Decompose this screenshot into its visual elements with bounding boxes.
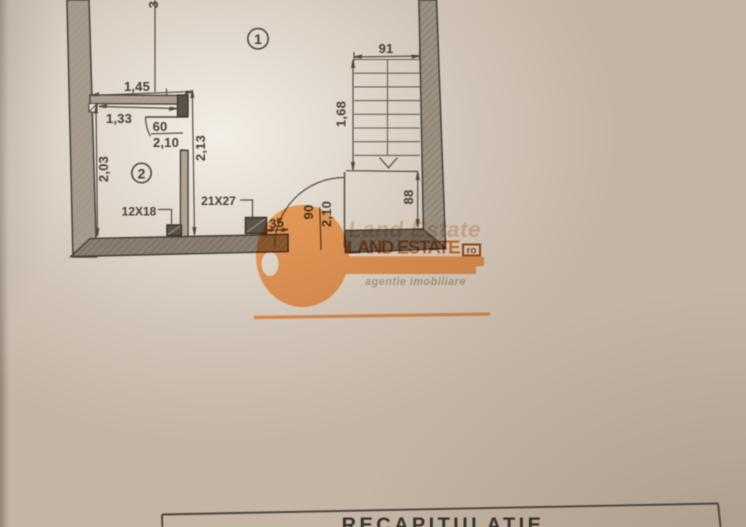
svg-text:1,68: 1,68 (334, 101, 349, 127)
svg-text:2,13: 2,13 (193, 135, 208, 161)
svg-text:12X18: 12X18 (122, 205, 157, 219)
svg-text:LAND ESTATE: LAND ESTATE (347, 237, 460, 258)
svg-text:21X27: 21X27 (201, 194, 236, 208)
svg-text:1,33: 1,33 (106, 111, 132, 126)
svg-text:2,10: 2,10 (153, 135, 179, 150)
svg-text:3: 3 (146, 1, 161, 8)
svg-text:1,45: 1,45 (124, 79, 150, 94)
svg-text:2: 2 (138, 165, 146, 181)
svg-text:91: 91 (379, 41, 394, 56)
svg-text:60: 60 (153, 119, 168, 134)
svg-text:ro: ro (467, 246, 477, 257)
svg-text:RECAPITULATIE: RECAPITULATIE (342, 515, 545, 527)
svg-text:agentie imobiliare: agentie imobiliare (365, 276, 466, 288)
svg-text:1: 1 (254, 31, 262, 47)
svg-text:2,03: 2,03 (96, 156, 111, 182)
svg-text:88: 88 (401, 190, 416, 205)
